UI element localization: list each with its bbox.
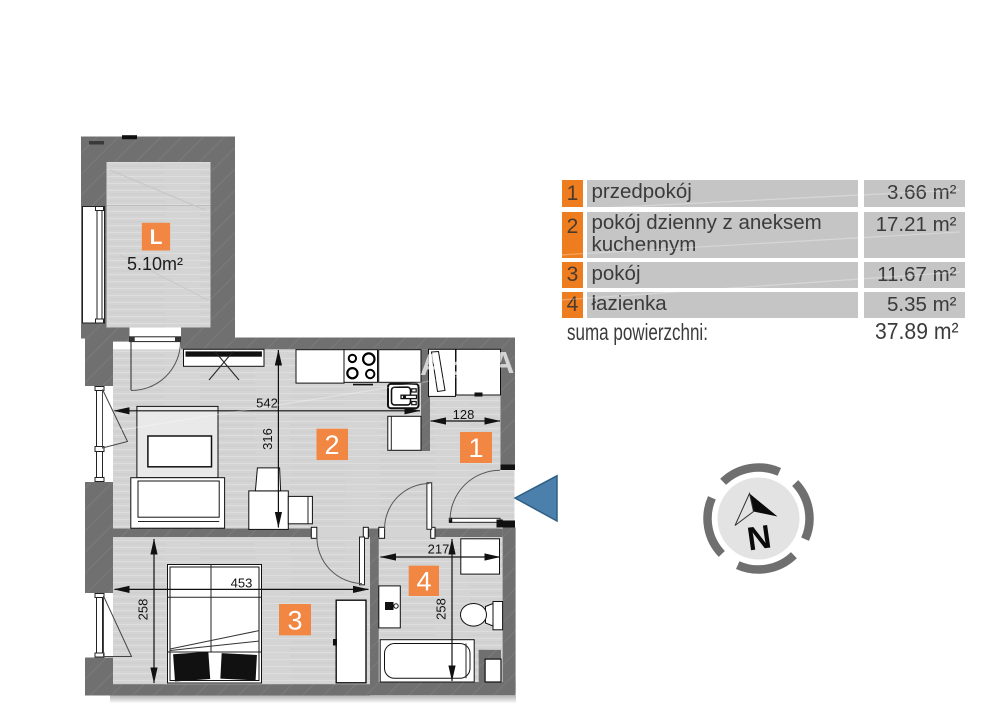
- svg-text:A: A: [420, 347, 442, 382]
- svg-text:L: L: [150, 226, 163, 249]
- svg-text:2: 2: [324, 430, 339, 460]
- svg-text:128: 128: [453, 407, 475, 422]
- svg-text:5.10m²: 5.10m²: [127, 254, 183, 274]
- svg-text:A: A: [492, 345, 514, 380]
- svg-text:316: 316: [260, 428, 275, 450]
- svg-text:258: 258: [136, 599, 151, 621]
- svg-text:217: 217: [428, 542, 450, 557]
- svg-text:4: 4: [416, 567, 431, 597]
- svg-text:258: 258: [434, 598, 449, 620]
- svg-text:1: 1: [468, 433, 483, 463]
- svg-text:453: 453: [231, 576, 253, 591]
- svg-text:3: 3: [287, 606, 302, 636]
- svg-text:N: N: [745, 518, 774, 558]
